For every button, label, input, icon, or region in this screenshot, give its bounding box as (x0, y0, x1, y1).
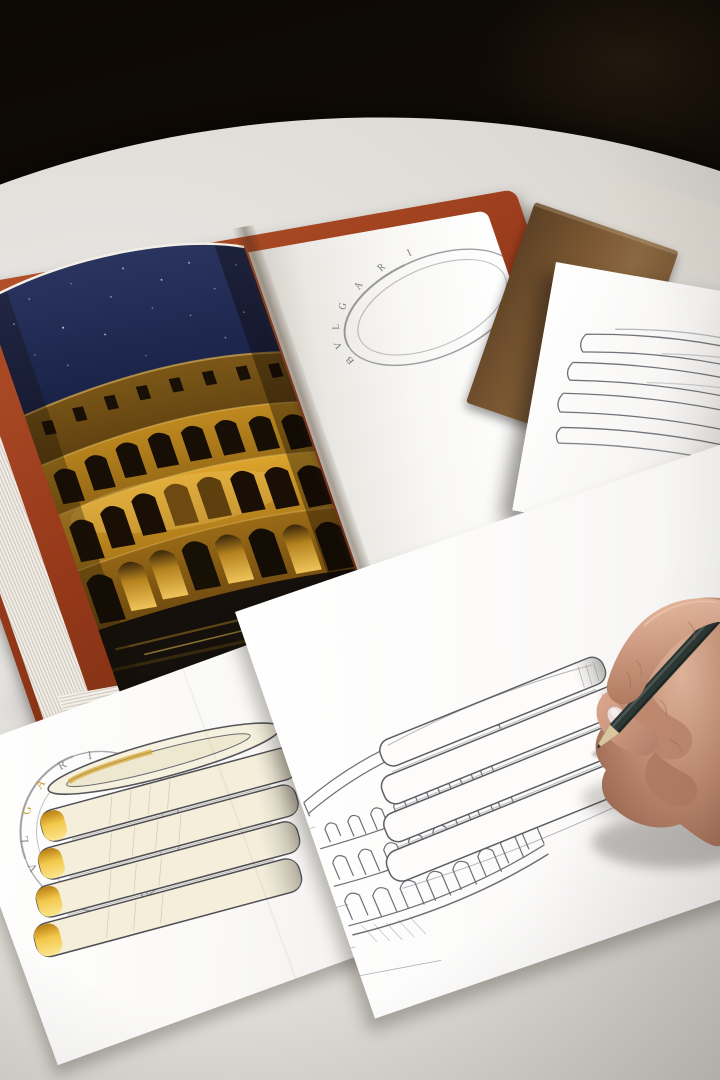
photo-scene: B V L G A R I (0, 0, 720, 1080)
vignette (0, 0, 720, 1080)
